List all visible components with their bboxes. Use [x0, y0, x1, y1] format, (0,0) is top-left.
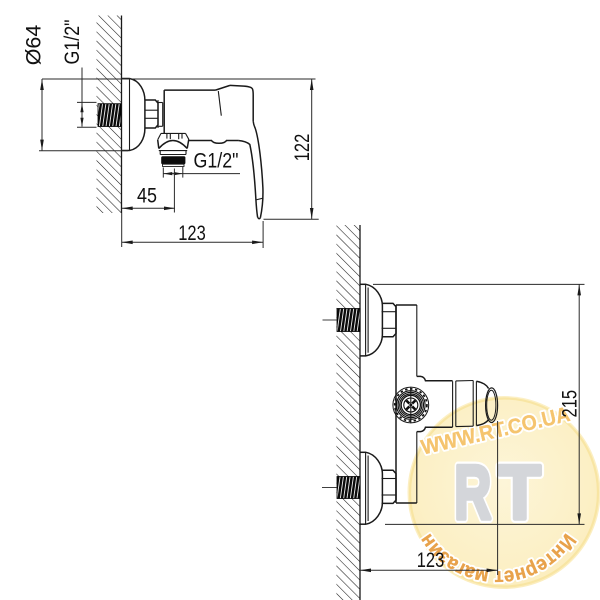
svg-text:123: 123: [417, 549, 445, 572]
svg-text:45: 45: [137, 184, 157, 207]
svg-text:T: T: [499, 451, 541, 536]
svg-text:G1/2": G1/2": [194, 150, 239, 173]
svg-text:123: 123: [178, 222, 206, 245]
svg-text:215: 215: [558, 390, 581, 418]
svg-text:122: 122: [291, 134, 314, 162]
svg-text:Ø64: Ø64: [22, 25, 46, 66]
svg-text:R: R: [454, 451, 491, 536]
svg-text:G1/2": G1/2": [61, 20, 84, 65]
